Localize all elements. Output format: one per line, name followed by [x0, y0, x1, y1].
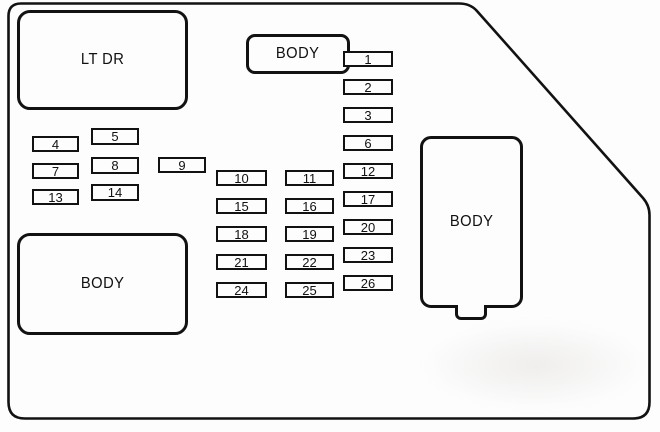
- fuse-14: 14: [91, 184, 139, 201]
- fuse-26: 26: [343, 275, 393, 291]
- fuse-24: 24: [216, 282, 267, 298]
- relay-block-body-top: BODY: [246, 34, 350, 74]
- fuse-13: 13: [32, 189, 79, 205]
- relay-block-label: BODY: [81, 275, 125, 293]
- relay-block-body-left: BODY: [17, 233, 188, 335]
- relay-block-body-right: BODY: [420, 136, 523, 308]
- fuse-8: 8: [91, 157, 139, 174]
- fuse-17: 17: [343, 191, 393, 207]
- fuse-9: 9: [158, 157, 206, 173]
- relay-block-label: BODY: [276, 45, 320, 63]
- fuse-16: 16: [285, 198, 334, 214]
- fuse-5: 5: [91, 128, 139, 145]
- fuse-25: 25: [285, 282, 334, 298]
- fuse-3: 3: [343, 107, 393, 123]
- relay-block-body-right-tab: [455, 305, 487, 320]
- fuse-10: 10: [216, 170, 267, 186]
- fuse-7: 7: [32, 163, 79, 179]
- fuse-19: 19: [285, 226, 334, 242]
- fuse-4: 4: [32, 136, 79, 152]
- relay-block-label: LT DR: [81, 51, 124, 69]
- fuse-11: 11: [285, 170, 334, 186]
- relay-block-lt-dr: LT DR: [17, 10, 188, 110]
- relay-block-label: BODY: [450, 213, 494, 231]
- fuse-box-diagram: LT DR BODY BODY BODY 4713581491015182124…: [0, 0, 660, 432]
- fuse-6: 6: [343, 135, 393, 151]
- fuse-1: 1: [343, 51, 393, 67]
- fuse-2: 2: [343, 79, 393, 95]
- fuse-21: 21: [216, 254, 267, 270]
- fuse-23: 23: [343, 247, 393, 263]
- fuse-20: 20: [343, 219, 393, 235]
- fuse-18: 18: [216, 226, 267, 242]
- fuse-15: 15: [216, 198, 267, 214]
- fuse-12: 12: [343, 163, 393, 179]
- fuse-22: 22: [285, 254, 334, 270]
